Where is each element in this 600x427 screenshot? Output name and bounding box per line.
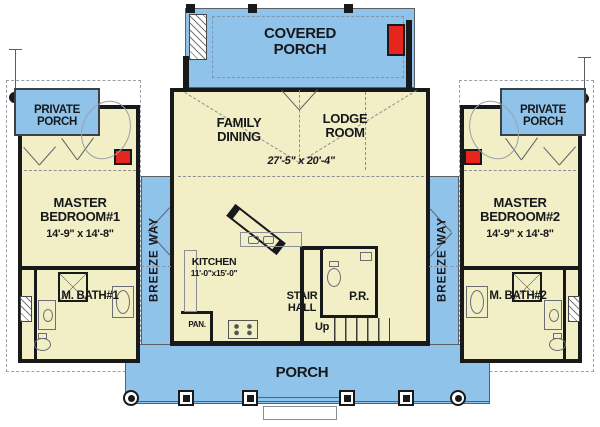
powder-room-label: P.R.: [342, 291, 376, 303]
breezeway-left-label: BREEZE WAY: [149, 200, 164, 320]
covered-porch-label: COVERED PORCH: [250, 26, 350, 58]
master-bath-1-label: M. BATH#1: [60, 290, 120, 302]
vanity-2-basin: [549, 309, 559, 322]
porch-column: [398, 390, 414, 406]
porch-steps: [263, 406, 337, 420]
kitchen-label: KITCHEN: [182, 257, 246, 268]
toilet-1: [34, 338, 51, 351]
post-bar-right: [578, 57, 591, 58]
vanity-2: [544, 300, 562, 330]
pantry-label: PAN.: [183, 321, 211, 330]
ceiling-ridge: [299, 90, 300, 162]
porch-column: [178, 390, 194, 406]
master-bedroom-2-dims: 14'-9" x 14'-8": [462, 229, 578, 241]
vanity-1: [38, 300, 56, 330]
toilet-2: [549, 338, 566, 351]
porch-rail: [256, 397, 344, 398]
front-porch-label: PORCH: [268, 365, 336, 381]
porch-column: [450, 390, 466, 406]
toilet-1-tank: [38, 333, 47, 339]
porch-column: [339, 390, 355, 406]
stove: [228, 320, 258, 339]
tub-2-basin: [470, 290, 484, 314]
great-room-dash: [178, 176, 424, 177]
kitchen-dims: 11'-0"x15'-0": [178, 269, 250, 278]
floor-plan: COVERED PORCH FAMILY DINING LODGE ROOM 2…: [0, 0, 600, 427]
porch-column-top-2: [248, 4, 257, 13]
post-bar-left: [9, 49, 22, 50]
left-wing-dash: [24, 170, 136, 171]
closet-2-hatch: [568, 296, 580, 322]
covered-porch-left-stub: [183, 56, 189, 90]
family-dining-label: FAMILY DINING: [197, 116, 281, 144]
tub-2: [466, 286, 488, 318]
pr-toilet: [327, 268, 341, 287]
up-label: Up: [310, 322, 334, 334]
grill-hatch: [189, 14, 207, 60]
sink-bowl: [263, 236, 274, 244]
porch-column-top-1: [186, 4, 195, 13]
porch-column: [123, 390, 139, 406]
great-room-dims: 27'-5" x 20'-4": [242, 156, 360, 168]
covered-porch-right-wall: [406, 20, 412, 88]
lodge-room-label: LODGE ROOM: [310, 112, 380, 140]
breezeway-right-label: BREEZE WAY: [437, 200, 452, 320]
sink-bowl: [248, 236, 259, 244]
porch-column: [242, 390, 258, 406]
stair-treads: [334, 318, 390, 341]
outdoor-fireplace: [387, 24, 405, 56]
right-wing-dash: [464, 170, 576, 171]
toilet-2-tank: [553, 333, 562, 339]
closet-1-hatch: [20, 296, 32, 322]
private-porch-left-label: PRIVATE PORCH: [17, 104, 97, 129]
master-bedroom-1-label: MASTER BEDROOM#1: [26, 196, 134, 224]
pr-toilet-tank: [329, 261, 339, 267]
stair-hall-label: STAIR HALL: [280, 291, 324, 315]
master-bath-2-label: M. BATH#2: [488, 290, 548, 302]
master-bedroom-2-label: MASTER BEDROOM#2: [466, 196, 574, 224]
porch-column-top-3: [344, 4, 353, 13]
master-bedroom-1-dims: 14'-9" x 14'-8": [22, 229, 138, 241]
private-porch-right-label: PRIVATE PORCH: [503, 104, 583, 129]
vanity-1-basin: [43, 309, 53, 322]
stair-hall-top-stub: [300, 246, 324, 250]
pr-sink: [360, 252, 372, 261]
